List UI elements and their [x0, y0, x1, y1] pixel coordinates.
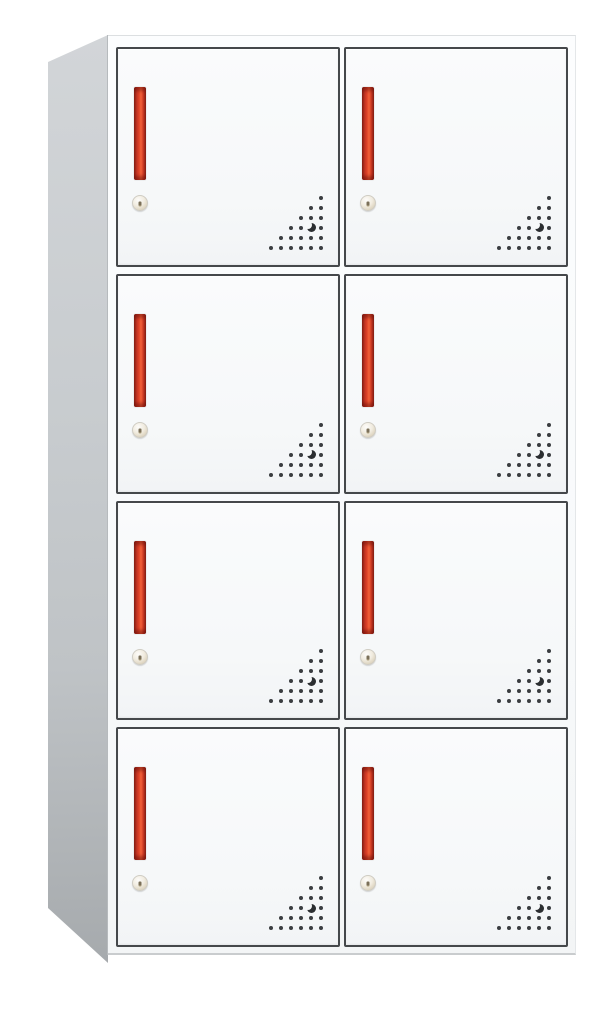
locker-door [116, 274, 340, 494]
vent-row [524, 213, 554, 223]
vent-cell [316, 656, 326, 666]
vent-hole [309, 206, 313, 210]
vent-cell [276, 686, 286, 696]
vent-hole [547, 699, 551, 703]
vent-cell [286, 923, 296, 933]
vent-cell [524, 470, 534, 480]
vent-cell [544, 646, 554, 656]
vent-row [306, 883, 326, 893]
vent-cell [534, 883, 544, 893]
vent-cell [544, 450, 554, 460]
vent-hole [319, 689, 323, 693]
door-handle-icon [134, 87, 146, 180]
vent-hole [319, 216, 323, 220]
vent-row [494, 470, 554, 480]
cam-lock-icon [132, 875, 148, 891]
vent-cell [524, 913, 534, 923]
vent-cell [544, 430, 554, 440]
vent-cell [276, 233, 286, 243]
vent-hole [517, 906, 521, 910]
vent-hole [289, 906, 293, 910]
vent-row [306, 203, 326, 213]
vent-hole [527, 453, 531, 457]
vent-crescent-hole [535, 677, 544, 686]
vent-cell [316, 420, 326, 430]
cam-lock-icon [132, 422, 148, 438]
vent-hole [507, 236, 511, 240]
vent-row [524, 893, 554, 903]
vent-cell [306, 460, 316, 470]
vent-hole [319, 196, 323, 200]
vent-cell [514, 243, 524, 253]
vent-cell [286, 243, 296, 253]
vent-cell [504, 233, 514, 243]
vent-cell [286, 913, 296, 923]
vent-hole [299, 689, 303, 693]
vent-row [514, 223, 554, 233]
cam-lock-icon [360, 649, 376, 665]
vent-hole [309, 246, 313, 250]
vent-cell [306, 233, 316, 243]
vent-cell [544, 203, 554, 213]
keyhole-icon [139, 428, 142, 432]
vent-cell [276, 243, 286, 253]
vent-row [534, 430, 554, 440]
vent-hole [527, 246, 531, 250]
vent-cell [544, 243, 554, 253]
vent-cell [286, 903, 296, 913]
vent-cell [514, 686, 524, 696]
door-handle-icon [134, 314, 146, 407]
ventilation-holes [494, 193, 554, 253]
vent-hole [547, 689, 551, 693]
vent-cell [544, 686, 554, 696]
vent-cell [276, 470, 286, 480]
vent-cell [276, 923, 286, 933]
vent-hole [279, 473, 283, 477]
vent-cell [266, 470, 276, 480]
vent-cell [266, 696, 276, 706]
vent-hole [309, 659, 313, 663]
locker-cabinet-photo [0, 0, 605, 1009]
vent-row [316, 646, 326, 656]
vent-cell [306, 883, 316, 893]
vent-hole [537, 699, 541, 703]
cabinet-front-face [108, 35, 576, 955]
vent-hole [309, 896, 313, 900]
vent-cell [316, 203, 326, 213]
vent-row [534, 656, 554, 666]
locker-door [344, 47, 568, 267]
vent-cell [544, 923, 554, 933]
vent-hole [299, 226, 303, 230]
vent-cell [286, 450, 296, 460]
vent-hole [309, 473, 313, 477]
vent-row [504, 686, 554, 696]
door-handle-icon [362, 767, 374, 860]
vent-hole [547, 463, 551, 467]
vent-cell [514, 460, 524, 470]
vent-cell [306, 430, 316, 440]
vent-cell [514, 450, 524, 460]
vent-cell [286, 686, 296, 696]
vent-hole [299, 669, 303, 673]
keyhole-icon [139, 201, 142, 205]
door-handle-icon [362, 87, 374, 180]
vent-cell [514, 696, 524, 706]
vent-hole [289, 699, 293, 703]
vent-hole [547, 236, 551, 240]
vent-cell [266, 923, 276, 933]
vent-hole [517, 453, 521, 457]
vent-hole [527, 906, 531, 910]
vent-row [306, 430, 326, 440]
vent-cell [504, 686, 514, 696]
vent-hole [299, 216, 303, 220]
vent-crescent-hole [535, 223, 544, 232]
vent-cell [544, 913, 554, 923]
vent-cell [316, 903, 326, 913]
vent-hole [309, 463, 313, 467]
vent-cell [524, 696, 534, 706]
vent-cell [316, 223, 326, 233]
vent-hole [319, 926, 323, 930]
ventilation-holes [494, 420, 554, 480]
vent-cell [316, 213, 326, 223]
vent-cell [524, 460, 534, 470]
locker-door [116, 727, 340, 947]
vent-cell [316, 233, 326, 243]
cam-lock-icon [360, 195, 376, 211]
vent-cell [534, 676, 544, 686]
vent-cell [534, 450, 544, 460]
vent-cell [544, 893, 554, 903]
vent-cell [544, 696, 554, 706]
vent-hole [269, 699, 273, 703]
vent-cell [544, 460, 554, 470]
vent-cell [544, 470, 554, 480]
vent-row [534, 883, 554, 893]
vent-hole [319, 236, 323, 240]
vent-cell [534, 903, 544, 913]
vent-cell [534, 233, 544, 243]
vent-cell [306, 223, 316, 233]
vent-cell [306, 923, 316, 933]
vent-hole [289, 453, 293, 457]
ventilation-holes [266, 193, 326, 253]
vent-row [266, 696, 326, 706]
vent-hole [537, 689, 541, 693]
vent-hole [319, 443, 323, 447]
vent-hole [319, 896, 323, 900]
cam-lock-icon [132, 649, 148, 665]
vent-hole [547, 876, 551, 880]
vent-hole [527, 463, 531, 467]
vent-hole [269, 473, 273, 477]
vent-hole [299, 246, 303, 250]
vent-hole [299, 906, 303, 910]
vent-cell [534, 470, 544, 480]
vent-hole [517, 926, 521, 930]
keyhole-icon [367, 428, 370, 432]
vent-cell [524, 686, 534, 696]
vent-hole [527, 216, 531, 220]
vent-cell [514, 223, 524, 233]
vent-row [316, 420, 326, 430]
vent-hole [279, 463, 283, 467]
vent-cell [296, 233, 306, 243]
vent-cell [296, 460, 306, 470]
vent-cell [514, 903, 524, 913]
vent-row [286, 903, 326, 913]
vent-hole [289, 473, 293, 477]
vent-cell [316, 450, 326, 460]
vent-row [286, 450, 326, 460]
vent-cell [316, 646, 326, 656]
vent-hole [527, 689, 531, 693]
vent-hole [319, 226, 323, 230]
vent-hole [537, 443, 541, 447]
vent-hole [309, 236, 313, 240]
locker-door [116, 47, 340, 267]
vent-hole [309, 669, 313, 673]
vent-hole [547, 216, 551, 220]
vent-hole [527, 226, 531, 230]
vent-hole [309, 699, 313, 703]
vent-hole [547, 453, 551, 457]
vent-cell [306, 686, 316, 696]
vent-cell [544, 903, 554, 913]
keyhole-icon [139, 655, 142, 659]
vent-hole [537, 433, 541, 437]
locker-door [116, 501, 340, 721]
vent-hole [537, 659, 541, 663]
vent-cell [286, 470, 296, 480]
vent-cell [504, 923, 514, 933]
vent-hole [269, 246, 273, 250]
vent-hole [537, 926, 541, 930]
vent-hole [319, 206, 323, 210]
vent-row [514, 903, 554, 913]
vent-cell [306, 243, 316, 253]
vent-row [544, 420, 554, 430]
vent-hole [309, 433, 313, 437]
vent-cell [306, 676, 316, 686]
vent-row [544, 646, 554, 656]
vent-row [306, 656, 326, 666]
vent-hole [319, 659, 323, 663]
vent-hole [527, 699, 531, 703]
vent-hole [507, 689, 511, 693]
vent-row [504, 913, 554, 923]
vent-hole [289, 689, 293, 693]
vent-cell [494, 470, 504, 480]
vent-hole [299, 916, 303, 920]
vent-hole [309, 916, 313, 920]
vent-hole [527, 679, 531, 683]
vent-hole [507, 463, 511, 467]
vent-cell [296, 913, 306, 923]
vent-cell [296, 923, 306, 933]
vent-hole [319, 886, 323, 890]
vent-row [286, 676, 326, 686]
vent-cell [544, 213, 554, 223]
vent-hole [279, 246, 283, 250]
vent-row [276, 913, 326, 923]
vent-cell [306, 203, 316, 213]
vent-crescent-hole [307, 450, 316, 459]
vent-hole [497, 926, 501, 930]
vent-cell [306, 913, 316, 923]
vent-hole [309, 443, 313, 447]
vent-hole [547, 433, 551, 437]
vent-cell [524, 893, 534, 903]
vent-hole [319, 433, 323, 437]
vent-hole [299, 453, 303, 457]
vent-cell [544, 656, 554, 666]
vent-hole [319, 463, 323, 467]
vent-crescent-hole [535, 450, 544, 459]
vent-hole [537, 463, 541, 467]
vent-hole [537, 246, 541, 250]
vent-cell [306, 903, 316, 913]
vent-cell [534, 203, 544, 213]
vent-cell [316, 696, 326, 706]
vent-hole [507, 473, 511, 477]
vent-hole [299, 463, 303, 467]
vent-cell [296, 243, 306, 253]
vent-cell [316, 676, 326, 686]
vent-hole [547, 679, 551, 683]
vent-cell [286, 676, 296, 686]
keyhole-icon [139, 882, 142, 886]
door-handle-icon [134, 767, 146, 860]
vent-hole [289, 916, 293, 920]
vent-cell [534, 913, 544, 923]
vent-hole [547, 906, 551, 910]
vent-cell [534, 430, 544, 440]
vent-hole [547, 649, 551, 653]
cam-lock-icon [360, 422, 376, 438]
vent-hole [547, 926, 551, 930]
vent-cell [266, 243, 276, 253]
cabinet-side-panel [48, 35, 108, 963]
vent-cell [296, 686, 306, 696]
vent-hole [517, 916, 521, 920]
vent-cell [534, 656, 544, 666]
vent-cell [504, 243, 514, 253]
vent-hole [517, 679, 521, 683]
vent-cell [306, 696, 316, 706]
vent-cell [504, 696, 514, 706]
vent-crescent-hole [535, 904, 544, 913]
vent-hole [547, 916, 551, 920]
vent-hole [547, 443, 551, 447]
vent-hole [537, 236, 541, 240]
vent-cell [544, 676, 554, 686]
vent-hole [299, 896, 303, 900]
vent-hole [269, 926, 273, 930]
locker-door [344, 727, 568, 947]
vent-cell [544, 233, 554, 243]
vent-row [494, 243, 554, 253]
vent-row [494, 923, 554, 933]
vent-hole [517, 463, 521, 467]
cam-lock-icon [132, 195, 148, 211]
vent-cell [306, 470, 316, 480]
vent-hole [319, 916, 323, 920]
vent-hole [319, 679, 323, 683]
vent-cell [276, 460, 286, 470]
vent-hole [319, 649, 323, 653]
vent-row [504, 460, 554, 470]
vent-hole [537, 896, 541, 900]
vent-cell [316, 686, 326, 696]
vent-hole [497, 699, 501, 703]
vent-hole [299, 699, 303, 703]
vent-cell [316, 460, 326, 470]
vent-cell [494, 696, 504, 706]
vent-cell [544, 223, 554, 233]
vent-hole [319, 246, 323, 250]
vent-hole [289, 246, 293, 250]
vent-hole [527, 916, 531, 920]
vent-hole [517, 236, 521, 240]
vent-cell [316, 913, 326, 923]
vent-cell [514, 913, 524, 923]
vent-cell [534, 696, 544, 706]
vent-cell [544, 666, 554, 676]
vent-hole [289, 236, 293, 240]
vent-row [276, 686, 326, 696]
vent-row [266, 470, 326, 480]
vent-hole [517, 226, 521, 230]
vent-hole [279, 916, 283, 920]
vent-cell [286, 460, 296, 470]
vent-row [494, 696, 554, 706]
vent-cell [306, 450, 316, 460]
vent-hole [289, 463, 293, 467]
vent-hole [319, 906, 323, 910]
vent-hole [517, 473, 521, 477]
vent-hole [309, 689, 313, 693]
vent-cell [544, 420, 554, 430]
vent-crescent-hole [307, 904, 316, 913]
vent-cell [316, 666, 326, 676]
vent-hole [279, 699, 283, 703]
door-handle-icon [362, 541, 374, 634]
vent-cell [316, 470, 326, 480]
vent-hole [299, 473, 303, 477]
vent-hole [319, 423, 323, 427]
vent-cell [494, 243, 504, 253]
vent-cell [524, 923, 534, 933]
vent-hole [507, 916, 511, 920]
locker-door [344, 501, 568, 721]
vent-hole [299, 236, 303, 240]
vent-hole [299, 679, 303, 683]
keyhole-icon [367, 655, 370, 659]
vent-row [544, 873, 554, 883]
vent-cell [316, 243, 326, 253]
vent-hole [279, 236, 283, 240]
vent-cell [296, 470, 306, 480]
vent-cell [534, 460, 544, 470]
vent-hole [299, 926, 303, 930]
vent-hole [547, 246, 551, 250]
ventilation-holes [266, 646, 326, 706]
vent-hole [547, 206, 551, 210]
